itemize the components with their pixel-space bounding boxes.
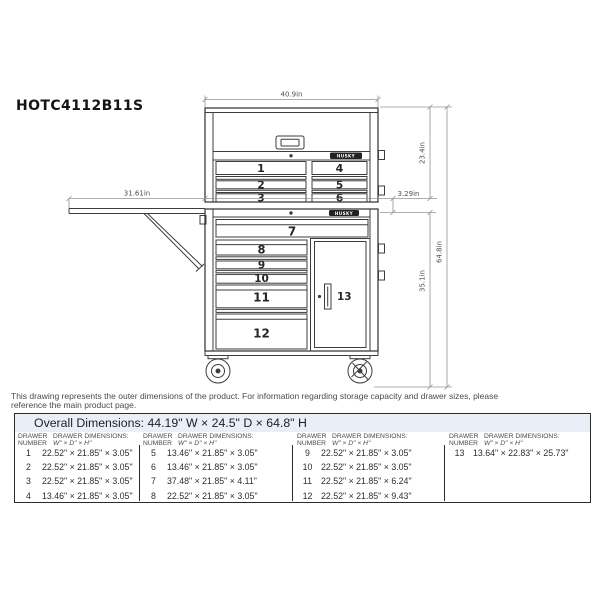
drawer-number-cell: 2: [18, 462, 39, 472]
table-group-4-header: DRAWERNUMBER DRAWER DIMENSIONS:W" × D" ×…: [449, 433, 589, 446]
drawer-10: 10: [216, 273, 307, 285]
husky-brand-logo-2-text: HUSKY: [335, 211, 354, 216]
header-dimensions: DRAWER DIMENSIONS:: [332, 433, 408, 440]
table-divider: [139, 445, 140, 501]
drawer-number-cell: 5: [143, 448, 164, 458]
drawer-number-cell: 7: [143, 476, 164, 486]
table-group-3: DRAWERNUMBER DRAWER DIMENSIONS:W" × D" ×…: [297, 433, 443, 503]
table-divider: [292, 445, 293, 501]
side-shelf: [69, 209, 206, 225]
drawer-dims-cell: 13.46" × 21.85" × 3.05": [39, 491, 133, 501]
header-wdh: W" × D" × H": [178, 440, 216, 447]
table-row: 513.46" × 21.85" × 3.05": [143, 446, 290, 460]
table-row: 822.52" × 21.85" × 3.05": [143, 489, 290, 503]
drawer-7: 7: [216, 220, 368, 239]
drawer-5: 5: [312, 180, 367, 192]
header-dimensions: DRAWER DIMENSIONS:: [178, 433, 254, 440]
husky-brand-logo-2: HUSKY: [329, 210, 359, 216]
drawer-7-label: 7: [288, 225, 296, 239]
dim-overall-height-label: 64.8in: [436, 241, 444, 263]
drawer-number-cell: 4: [18, 491, 39, 501]
footnote-line-2: reference the main product page.: [11, 400, 136, 410]
drawer-dims-cell: 22.52" × 21.85" × 3.05": [164, 491, 258, 501]
cabinet-lock-icon: [289, 211, 292, 214]
drawer-dimensions-table: Overall Dimensions: 44.19" W × 24.5" D ×…: [14, 413, 591, 503]
door-13-label: 13: [337, 291, 352, 303]
table-group-4: DRAWERNUMBER DRAWER DIMENSIONS:W" × D" ×…: [449, 433, 589, 460]
overall-dimensions-row: Overall Dimensions: 44.19" W × 24.5" D ×…: [15, 414, 590, 432]
drawer-1-label: 1: [257, 162, 265, 175]
dim-chest-height-label: 23.4in: [419, 142, 427, 164]
table-row: 737.48" × 21.85" × 4.11": [143, 474, 290, 488]
drawer-2-label: 2: [257, 180, 264, 192]
header-number: NUMBER: [18, 440, 47, 447]
drawer-4-label: 4: [336, 162, 344, 175]
header-wdh: W" × D" × H": [53, 440, 91, 447]
table-row: 922.52" × 21.85" × 3.05": [297, 446, 443, 460]
drawer-dims-cell: 22.52" × 21.85" × 3.05": [318, 448, 412, 458]
husky-brand-logo: HUSKY: [330, 153, 362, 160]
drawer-dims-cell: 22.52" × 21.85" × 3.05": [39, 476, 133, 486]
header-number: NUMBER: [449, 440, 478, 447]
drawer-12: 12: [216, 314, 307, 349]
drawer-9-label: 9: [258, 260, 265, 272]
drawer-number-cell: 3: [18, 476, 39, 486]
drawer-dims-cell: 22.52" × 21.85" × 9.43": [318, 491, 412, 501]
header-wdh: W" × D" × H": [332, 440, 370, 447]
drawer-8: 8: [216, 240, 307, 257]
table-group-2-header: DRAWERNUMBER DRAWER DIMENSIONS:W" × D" ×…: [143, 433, 290, 446]
table-row: 413.46" × 21.85" × 3.05": [18, 489, 138, 503]
drawer-dims-cell: 22.52" × 21.85" × 6.24": [318, 476, 412, 486]
caster-left: [206, 356, 230, 384]
product-dimension-sheet: HOTC4112B11S HUSKY 1 2 3 4: [0, 0, 600, 600]
table-row: 122.52" × 21.85" × 3.05": [18, 446, 138, 460]
drawer-5-label: 5: [336, 180, 343, 192]
header-wdh: W" × D" × H": [484, 440, 522, 447]
drawer-dims-cell: 22.52" × 21.85" × 3.05": [318, 462, 412, 472]
drawer-11: 11: [216, 285, 307, 308]
drawer-dims-cell: 13.46" × 21.85" × 3.05": [164, 462, 258, 472]
product-line-drawing: HUSKY 1 2 3 4 5 6: [0, 0, 600, 600]
cabinet-door-13: 13: [311, 239, 371, 352]
drawer-11-label: 11: [253, 291, 270, 305]
door-lock-icon: [318, 295, 321, 298]
drawer-8-label: 8: [257, 243, 265, 257]
header-number: NUMBER: [143, 440, 172, 447]
drawer-number-cell: 12: [297, 491, 318, 501]
table-row: 222.52" × 21.85" × 3.05": [18, 460, 138, 474]
header-number: NUMBER: [297, 440, 326, 447]
drawer-number-cell: 1: [18, 448, 39, 458]
table-group-3-header: DRAWERNUMBER DRAWER DIMENSIONS:W" × D" ×…: [297, 433, 443, 446]
table-row: 1122.52" × 21.85" × 6.24": [297, 474, 443, 488]
header-dimensions: DRAWER DIMENSIONS:: [53, 433, 129, 440]
table-group-1: DRAWERNUMBER DRAWER DIMENSIONS:W" × D" ×…: [18, 433, 138, 503]
table-row: 322.52" × 21.85" × 3.05": [18, 474, 138, 488]
drawer-dims-cell: 22.52" × 21.85" × 3.05": [39, 462, 133, 472]
drawer-number-cell: 6: [143, 462, 164, 472]
husky-brand-logo-text: HUSKY: [337, 154, 356, 159]
caster-right: [348, 356, 372, 384]
table-row: 613.46" × 21.85" × 3.05": [143, 460, 290, 474]
overall-dimensions-text: Overall Dimensions: 44.19" W × 24.5" D ×…: [34, 416, 307, 430]
header-drawer: DRAWER: [18, 433, 47, 440]
drawer-dims-cell: 37.48" × 21.85" × 4.11": [164, 476, 257, 486]
drawer-number-cell: 9: [297, 448, 318, 458]
table-row: 1022.52" × 21.85" × 3.05": [297, 460, 443, 474]
table-row: 1222.52" × 21.85" × 9.43": [297, 489, 443, 503]
table-row: 1313.64" × 22.83" × 25.73": [449, 446, 589, 460]
drawer-9: 9: [216, 260, 307, 272]
drawer-10-label: 10: [254, 273, 269, 285]
chest-lock-icon: [289, 154, 292, 157]
drawer-dims-cell: 13.64" × 22.83" × 25.73": [470, 448, 568, 458]
header-drawer: DRAWER: [143, 433, 172, 440]
dim-top-width-label: 40.9in: [281, 91, 303, 99]
drawer-12-label: 12: [253, 327, 270, 341]
drawer-number-cell: 13: [449, 448, 470, 458]
dim-cabinet-height-label: 35.1in: [419, 270, 427, 292]
drawer-dims-cell: 13.46" × 21.85" × 3.05": [164, 448, 258, 458]
table-group-2: DRAWERNUMBER DRAWER DIMENSIONS:W" × D" ×…: [143, 433, 290, 503]
chest-drawer-slides: [216, 177, 367, 193]
drawer-number-cell: 10: [297, 462, 318, 472]
lid-handle: [276, 136, 304, 149]
header-drawer: DRAWER: [297, 433, 326, 440]
header-dimensions: DRAWER DIMENSIONS:: [484, 433, 560, 440]
drawer-number-cell: 11: [297, 476, 318, 486]
drawer-dims-cell: 22.52" × 21.85" × 3.05": [39, 448, 133, 458]
table-divider: [444, 445, 445, 501]
drawer-number-cell: 8: [143, 491, 164, 501]
dim-shelf-length-label: 31.61in: [124, 190, 150, 198]
drawer-4: 4: [312, 162, 367, 176]
shelf-support-bracket: [144, 214, 204, 272]
table-group-1-header: DRAWERNUMBER DRAWER DIMENSIONS:W" × D" ×…: [18, 433, 138, 446]
header-drawer: DRAWER: [449, 433, 478, 440]
drawer-2: 2: [216, 180, 306, 192]
side-rail-clips: [379, 151, 385, 281]
dim-rail-gap-label: 3.29in: [398, 190, 420, 198]
drawer-1: 1: [216, 162, 306, 176]
